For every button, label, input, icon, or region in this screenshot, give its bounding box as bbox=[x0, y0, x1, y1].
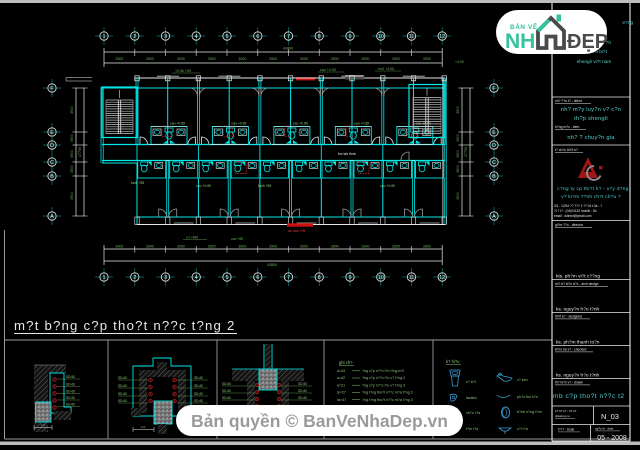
svg-text:A: A bbox=[50, 214, 54, 220]
svg-text:?ng t?ng tho?t n??c m?a t?ng 2: ?ng t?ng tho?t n??c m?a t?ng 2 bbox=[362, 391, 413, 395]
svg-text:3900: 3900 bbox=[456, 192, 460, 200]
svg-text:b?nh n?ng l?nh: b?nh n?ng l?nh bbox=[517, 410, 542, 414]
svg-text:t? l? - scale: t? l? - scale bbox=[558, 428, 575, 432]
svg-text:3900: 3900 bbox=[392, 57, 400, 61]
svg-text:SD-60: SD-60 bbox=[194, 376, 203, 380]
svg-text:1: 1 bbox=[102, 275, 105, 281]
svg-text:gi?m ??c - director: gi?m ??c - director bbox=[555, 223, 584, 227]
svg-text:?ng t?ng tho?t n??c m?a t?ng 3: ?ng t?ng tho?t n??c m?a t?ng 3 bbox=[362, 398, 413, 402]
svg-text:drawing no: drawing no bbox=[555, 414, 570, 418]
svg-text:cn +480: cn +480 bbox=[186, 236, 198, 240]
svg-text:3900: 3900 bbox=[208, 57, 216, 61]
svg-text:t?m r?a: t?m r?a bbox=[466, 427, 478, 431]
svg-text:1: 1 bbox=[102, 34, 105, 40]
svg-text:SD-60: SD-60 bbox=[66, 383, 75, 387]
svg-text:SD-60: SD-60 bbox=[66, 375, 75, 379]
svg-text:4: 4 bbox=[195, 275, 198, 281]
svg-text:11: 11 bbox=[409, 275, 415, 281]
svg-text:3900: 3900 bbox=[70, 165, 74, 173]
svg-text:?ng c?p n??c l?u v? t?ng 3: ?ng c?p n??c l?u v? t?ng 3 bbox=[362, 383, 405, 387]
svg-text:3900: 3900 bbox=[331, 57, 339, 61]
svg-text:3900: 3900 bbox=[238, 57, 246, 61]
svg-text:m?t b?ng c?p tho?t n??c t?ng 2: m?t b?ng c?p tho?t n??c t?ng 2 bbox=[14, 318, 236, 333]
svg-text:2: 2 bbox=[133, 275, 136, 281]
svg-text:thi?t k? - designed: thi?t k? - designed bbox=[555, 315, 582, 319]
svg-text:?ng c?p n??c l?n t?ng m?i: ?ng c?p n??c l?n t?ng m?i bbox=[362, 369, 404, 373]
svg-text:12: 12 bbox=[439, 34, 445, 40]
svg-text:9: 9 bbox=[348, 275, 351, 281]
svg-text:7: 7 bbox=[287, 34, 290, 40]
svg-text:3900: 3900 bbox=[70, 192, 74, 200]
svg-text:SD-60: SD-60 bbox=[66, 390, 75, 394]
svg-text:3900: 3900 bbox=[70, 106, 74, 114]
svg-text:a=43: a=43 bbox=[337, 369, 345, 373]
svg-text:bath +85: bath +85 bbox=[131, 181, 144, 185]
svg-text:nh? m?y luy?n v? c?n: nh? m?y luy?n v? c?n bbox=[561, 107, 621, 113]
svg-text:SD-60: SD-60 bbox=[298, 382, 307, 386]
svg-text:ch? ??u t? - client: ch? ??u t? - client bbox=[555, 99, 582, 103]
svg-text:e?ng: e?ng bbox=[622, 20, 633, 26]
svg-text:N_03: N_03 bbox=[601, 412, 619, 421]
svg-text:ghi ch?: ghi ch? bbox=[339, 360, 353, 365]
svg-text:ĐẸP: ĐẸP bbox=[567, 31, 608, 53]
svg-text:3900: 3900 bbox=[70, 134, 74, 142]
svg-text:ch? tr? ki?n tr?c - arch desig: ch? tr? ki?n tr?c - arch design bbox=[555, 282, 599, 286]
svg-text:h?ng m?c - item: h?ng m?c - item bbox=[555, 125, 579, 129]
svg-text:C: C bbox=[50, 160, 54, 166]
svg-text:C: C bbox=[492, 160, 496, 166]
svg-text:D: D bbox=[492, 143, 496, 149]
svg-text:3900: 3900 bbox=[238, 245, 246, 249]
svg-text:3900: 3900 bbox=[423, 57, 431, 61]
svg-text:cao +0.85: cao +0.85 bbox=[380, 184, 395, 188]
svg-text:2: 2 bbox=[133, 34, 136, 40]
svg-text:3900: 3900 bbox=[208, 245, 216, 249]
svg-text:s? h? s? - h? s?: s? h? s? - h? s? bbox=[555, 409, 577, 413]
svg-text:SD-60: SD-60 bbox=[194, 399, 203, 403]
svg-text:Bản quyền © BanVeNhaDep.vn: Bản quyền © BanVeNhaDep.vn bbox=[191, 411, 448, 431]
svg-text:?t ? t? : (04)04133 mobile: ?t ? t? : (04)04133 mobile : 84 bbox=[554, 209, 597, 213]
svg-text:3: 3 bbox=[164, 34, 167, 40]
svg-text:3900: 3900 bbox=[146, 57, 154, 61]
svg-text:E: E bbox=[50, 130, 54, 136]
svg-text:SD-60: SD-60 bbox=[118, 399, 127, 403]
svg-text:SD-60: SD-60 bbox=[194, 392, 203, 396]
svg-text:11: 11 bbox=[409, 34, 415, 40]
svg-text:v? ki?m ??nh ch?t ch?u ?: v? ki?m ??nh ch?t ch?u ? bbox=[561, 194, 621, 200]
svg-text:shengli vi?t nam: shengli vi?t nam bbox=[577, 59, 612, 65]
svg-text:43800: 43800 bbox=[283, 47, 294, 51]
svg-text:SD-60: SD-60 bbox=[222, 382, 231, 386]
svg-text:10: 10 bbox=[378, 275, 384, 281]
svg-text:F: F bbox=[492, 86, 496, 92]
svg-text:6: 6 bbox=[256, 275, 259, 281]
svg-text:th?p shengli: th?p shengli bbox=[574, 116, 608, 122]
svg-text:ph?u thu s?n: ph?u thu s?n bbox=[517, 395, 538, 399]
svg-text:a=42: a=42 bbox=[337, 376, 345, 380]
svg-text:220: 220 bbox=[141, 425, 146, 429]
svg-text:t? ch?c thi?t k?: t? ch?c thi?t k? bbox=[555, 148, 578, 152]
svg-text:220: 220 bbox=[41, 423, 46, 427]
svg-text:4: 4 bbox=[195, 34, 198, 40]
svg-text:3900: 3900 bbox=[456, 165, 460, 173]
svg-text:17700: 17700 bbox=[464, 147, 468, 157]
svg-text:3900: 3900 bbox=[456, 106, 460, 114]
svg-text:12: 12 bbox=[439, 275, 445, 281]
svg-text:SD-60: SD-60 bbox=[118, 384, 127, 388]
svg-text:3900: 3900 bbox=[177, 57, 185, 61]
svg-text:wc dus +05: wc dus +05 bbox=[288, 229, 305, 233]
svg-text:ks. ph?m thanh to?n: ks. ph?m thanh to?n bbox=[556, 340, 600, 346]
svg-text:A: A bbox=[492, 214, 496, 220]
svg-text:7: 7 bbox=[287, 275, 290, 281]
svg-text:SD-60: SD-60 bbox=[118, 392, 127, 396]
svg-text:3900: 3900 bbox=[115, 57, 123, 61]
svg-text:B: B bbox=[492, 174, 496, 180]
svg-text:cao +0.85: cao +0.85 bbox=[293, 122, 308, 126]
svg-text:SD-60: SD-60 bbox=[118, 376, 127, 380]
svg-text:3900: 3900 bbox=[423, 245, 431, 249]
svg-text:nh? ? chuy?n gia: nh? ? chuy?n gia bbox=[567, 135, 615, 141]
svg-text:v?i r?a: v?i r?a bbox=[517, 427, 528, 431]
svg-text:bm lab thnb: bm lab thnb bbox=[338, 152, 356, 156]
svg-text:+m3 +4.05: +m3 +4.05 bbox=[377, 67, 394, 71]
svg-text:8: 8 bbox=[318, 34, 321, 40]
svg-text:3900: 3900 bbox=[146, 245, 154, 249]
svg-text:10: 10 bbox=[378, 34, 384, 40]
svg-text:F: F bbox=[50, 86, 54, 92]
svg-text:SD-60: SD-60 bbox=[298, 396, 307, 400]
svg-text:3900: 3900 bbox=[177, 245, 185, 249]
svg-text:3900: 3900 bbox=[361, 57, 369, 61]
svg-text:SD-60: SD-60 bbox=[194, 384, 203, 388]
svg-text:B: B bbox=[50, 174, 54, 180]
svg-text:3900: 3900 bbox=[269, 57, 277, 61]
svg-text:lavabo: lavabo bbox=[466, 396, 477, 400]
svg-text:cao +85: cao +85 bbox=[231, 237, 243, 241]
svg-text:SD-60: SD-60 bbox=[66, 396, 75, 400]
svg-text:3900: 3900 bbox=[456, 150, 460, 158]
svg-text:c?ng ty cp thi?t k? - x?y d?ng: c?ng ty cp thi?t k? - x?y d?ng bbox=[557, 186, 628, 192]
svg-text:+4.05: +4.05 bbox=[455, 60, 464, 64]
svg-text:3900: 3900 bbox=[392, 245, 400, 249]
svg-text:6: 6 bbox=[256, 34, 259, 40]
svg-text:3900: 3900 bbox=[70, 150, 74, 158]
svg-text:ks. nguy?n h?u t?nh: ks. nguy?n h?u t?nh bbox=[556, 307, 600, 313]
svg-text:k? hi?u: k? hi?u bbox=[446, 359, 460, 364]
svg-text:3/1 : 12/34 ?? ??? 1 ?? 04 t.3: 3/1 : 12/34 ?? ??? 1 ?? 04 t.3a - ? bbox=[554, 204, 602, 208]
svg-text:ki?m tra v? - checked: ki?m tra v? - checked bbox=[555, 348, 586, 352]
svg-text:SD-60: SD-60 bbox=[222, 389, 231, 393]
svg-text:5: 5 bbox=[225, 275, 228, 281]
svg-text:3900: 3900 bbox=[300, 57, 308, 61]
svg-text:3900: 3900 bbox=[331, 245, 339, 249]
svg-text:x? b?t: x? b?t bbox=[466, 380, 476, 384]
svg-text:5: 5 bbox=[225, 34, 228, 40]
svg-text:cao +4.05: cao +4.05 bbox=[320, 68, 336, 72]
svg-text:3900: 3900 bbox=[300, 245, 308, 249]
svg-text:3: 3 bbox=[164, 275, 167, 281]
svg-text:kts. ph?m vi?t c??ng: kts. ph?m vi?t c??ng bbox=[556, 274, 600, 280]
svg-text:email : ddirect@ymail.com: email : ddirect@ymail.com bbox=[554, 214, 592, 218]
svg-text:SD-60: SD-60 bbox=[298, 389, 307, 393]
svg-text:SD-60: SD-60 bbox=[222, 396, 231, 400]
svg-text:05 - 2008: 05 - 2008 bbox=[597, 435, 627, 442]
svg-text:9: 9 bbox=[348, 34, 351, 40]
svg-text:cao +0.85: cao +0.85 bbox=[354, 122, 369, 126]
svg-text:ng?y th - date: ng?y th - date bbox=[595, 427, 614, 431]
svg-text:th? hi?n v? - drawn: th? hi?n v? - drawn bbox=[555, 381, 583, 385]
svg-text:bath +85: bath +85 bbox=[258, 184, 271, 188]
svg-text:SD-60: SD-60 bbox=[66, 403, 75, 407]
svg-text:ty=27: ty=27 bbox=[337, 391, 346, 395]
svg-text:cao +0.85: cao +0.85 bbox=[416, 122, 431, 126]
svg-text:17700: 17700 bbox=[78, 147, 82, 157]
svg-text:ta=47: ta=47 bbox=[337, 398, 346, 402]
svg-text:3900: 3900 bbox=[269, 245, 277, 249]
svg-text:mb c?p tho?t n??c t2: mb c?p tho?t n??c t2 bbox=[553, 393, 625, 400]
svg-text:cao +0.85: cao +0.85 bbox=[196, 184, 211, 188]
svg-text:3900: 3900 bbox=[361, 245, 369, 249]
svg-text:3900: 3900 bbox=[115, 245, 123, 249]
svg-text:E: E bbox=[492, 130, 496, 136]
svg-text:ch?u r?a: ch?u r?a bbox=[466, 411, 480, 415]
svg-text:?ng c?p n??c l?u v? t?ng 2: ?ng c?p n??c l?u v? t?ng 2 bbox=[362, 376, 405, 380]
svg-text:a=21: a=21 bbox=[337, 383, 345, 387]
svg-text:cao +0.85: cao +0.85 bbox=[170, 122, 185, 126]
svg-text:+0.5k +05: +0.5k +05 bbox=[175, 69, 191, 73]
svg-text:NH: NH bbox=[505, 30, 535, 53]
svg-text:ks. nguy?n h?u t?nh: ks. nguy?n h?u t?nh bbox=[556, 373, 600, 379]
svg-text:D: D bbox=[50, 143, 54, 149]
svg-text:8: 8 bbox=[318, 275, 321, 281]
svg-text:v? sen: v? sen bbox=[517, 378, 528, 382]
svg-text:3900: 3900 bbox=[456, 134, 460, 142]
svg-text:cao +0.85: cao +0.85 bbox=[231, 122, 246, 126]
svg-text:43800: 43800 bbox=[267, 263, 278, 267]
